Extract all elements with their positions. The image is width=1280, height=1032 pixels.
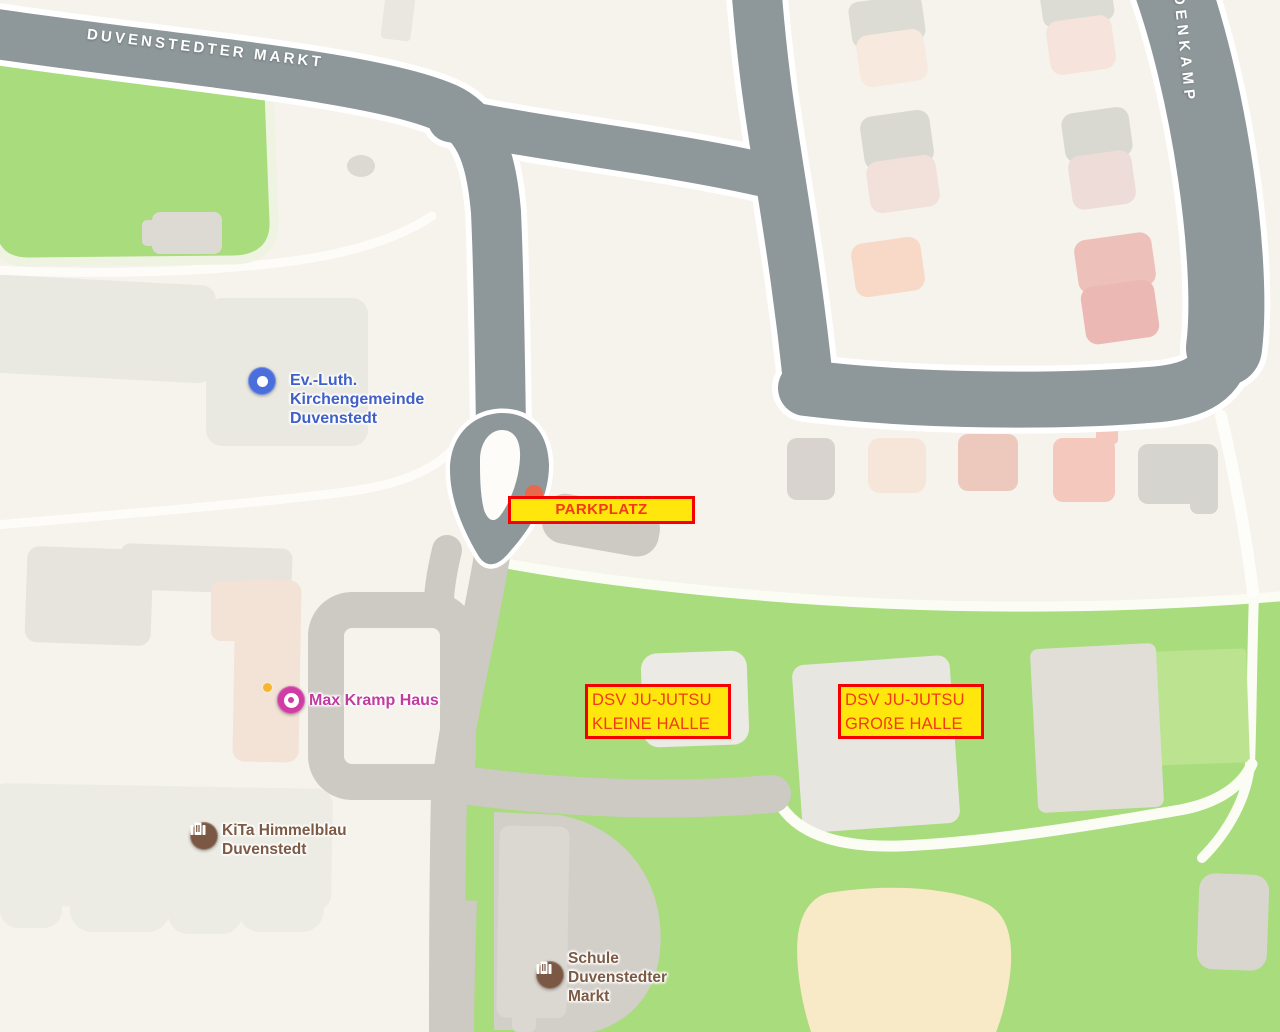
poi-max-kramp-label[interactable]: Max Kramp Haus [309,691,439,710]
schule-marker-icon[interactable] [536,961,564,989]
annotation-grosse-halle: DSV JU-JUTSU GROßE HALLE [838,684,984,739]
annotation-line: KLEINE HALLE [592,712,728,736]
building-icon [536,961,552,974]
poi-line: Duvenstedt [290,409,424,428]
poi-line: Markt [568,987,667,1006]
poi-line: Ev.-Luth. [290,371,424,390]
poi-line: Max Kramp Haus [309,691,439,710]
annotation-line: DSV JU-JUTSU [845,688,981,712]
poi-line: Schule [568,949,667,968]
max-kramp-marker-icon[interactable] [277,686,305,714]
annotation-line: DSV JU-JUTSU [592,688,728,712]
poi-schule-label[interactable]: Schule Duvenstedter Markt [568,949,667,1006]
poi-line: Duvenstedt [222,840,347,859]
poi-line: Duvenstedter [568,968,667,987]
marker-dot [257,376,268,387]
poi-line: Kirchengemeinde [290,390,424,409]
marker-ring [284,693,299,708]
poi-line: KiTa Himmelblau [222,821,347,840]
kita-marker-icon[interactable] [190,822,218,850]
poi-church-label[interactable]: Ev.-Luth. Kirchengemeinde Duvenstedt [290,371,424,428]
map-canvas: DUVENSTEDTER MARKT IDENKAMP Ev.-Luth. Ki… [0,0,1280,1032]
annotation-parkplatz: PARKPLATZ [508,496,695,524]
annotation-kleine-halle: DSV JU-JUTSU KLEINE HALLE [585,684,731,739]
small-poi-dot-icon [263,683,272,692]
annotation-line: GROßE HALLE [845,712,981,736]
building-icon [190,822,206,835]
church-marker-icon[interactable] [248,367,276,395]
poi-kita-label[interactable]: KiTa Himmelblau Duvenstedt [222,821,347,859]
